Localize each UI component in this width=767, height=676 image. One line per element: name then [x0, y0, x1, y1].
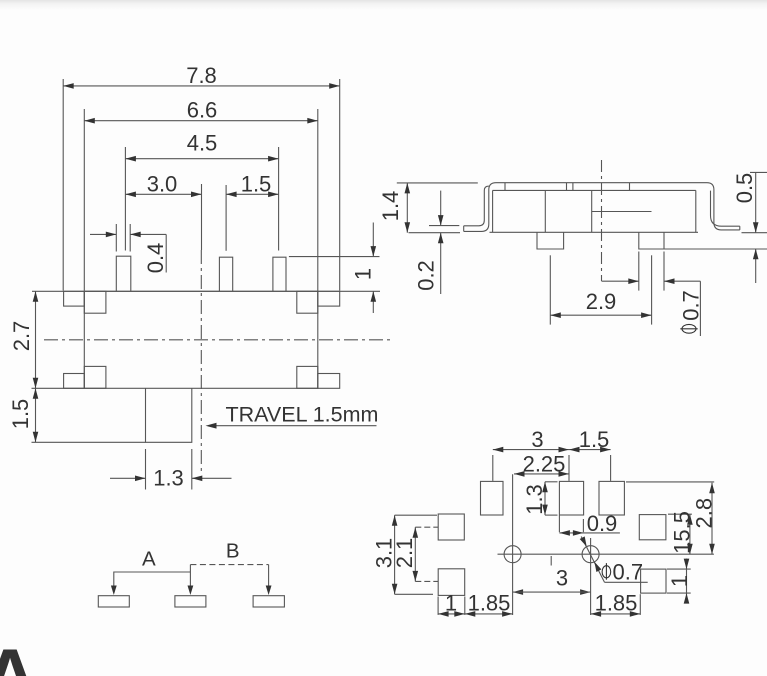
svg-text:0.7: 0.7 — [679, 290, 704, 321]
svg-text:3: 3 — [556, 566, 568, 591]
svg-text:4.5: 4.5 — [187, 131, 218, 156]
svg-text:2.1: 2.1 — [392, 538, 417, 569]
svg-text:1.3: 1.3 — [153, 466, 184, 491]
svg-text:A: A — [142, 548, 156, 571]
svg-text:1.5: 1.5 — [8, 399, 33, 430]
svg-text:0.5: 0.5 — [732, 173, 757, 204]
svg-text:15.5: 15.5 — [670, 511, 695, 554]
svg-text:1.4: 1.4 — [378, 191, 403, 222]
svg-text:1.85: 1.85 — [468, 590, 511, 615]
svg-text:B: B — [226, 540, 240, 563]
svg-text:6.6: 6.6 — [187, 98, 218, 123]
svg-text:0.4: 0.4 — [143, 243, 168, 274]
svg-text:0.2: 0.2 — [414, 260, 439, 291]
svg-text:1: 1 — [445, 590, 457, 615]
svg-text:1: 1 — [351, 268, 376, 280]
svg-text:A: A — [0, 632, 38, 676]
svg-text:1.85: 1.85 — [595, 590, 638, 615]
svg-text:1.5: 1.5 — [579, 427, 610, 452]
svg-text:1.5: 1.5 — [241, 172, 272, 197]
svg-text:2.8: 2.8 — [692, 498, 717, 529]
svg-text:0.7: 0.7 — [613, 560, 644, 585]
svg-text:3.0: 3.0 — [147, 172, 178, 197]
svg-text:0.9: 0.9 — [587, 511, 618, 536]
svg-text:2.9: 2.9 — [586, 289, 617, 314]
svg-text:3: 3 — [531, 427, 543, 452]
svg-text:1: 1 — [667, 575, 692, 587]
svg-text:7.8: 7.8 — [186, 63, 217, 88]
svg-text:1.3: 1.3 — [522, 484, 547, 515]
svg-text:2.7: 2.7 — [9, 321, 34, 352]
svg-text:2.25: 2.25 — [523, 451, 566, 476]
svg-text:TRAVEL 1.5mm: TRAVEL 1.5mm — [226, 403, 379, 427]
